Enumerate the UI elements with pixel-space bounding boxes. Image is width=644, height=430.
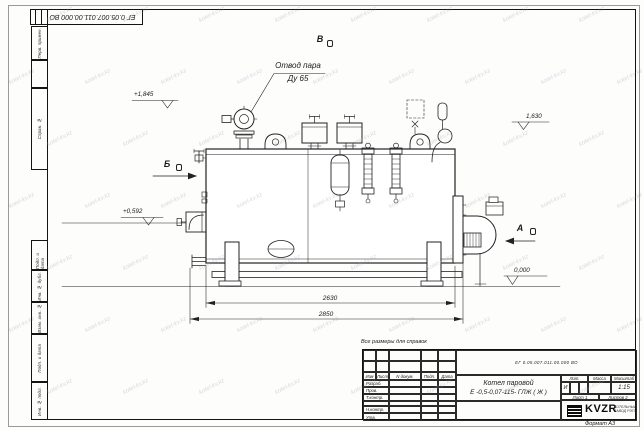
row-nkontr: Н.контр. — [363, 406, 389, 413]
dashed-fitting — [407, 100, 424, 134]
sheets-value: 2 — [625, 395, 627, 400]
titleblock-cell — [389, 406, 421, 413]
reference-note: Все размеры для справок — [361, 339, 427, 345]
titleblock-cell — [421, 413, 438, 421]
col-header-list: Лист — [376, 372, 389, 380]
titleblock-cell — [438, 387, 456, 394]
scale-value: 1:15 — [611, 382, 637, 394]
titleblock-cell — [570, 382, 579, 394]
steam-outlet-label-line2: Ду 65 — [262, 74, 334, 83]
titleblock-cell — [389, 350, 421, 361]
logo-cell: KVZR КОТЕЛЬНЫЙ ЗАВОД РЭП — [561, 400, 637, 421]
sheets-label: Листов — [608, 395, 624, 400]
steam-outlet-valve — [222, 106, 257, 149]
titleblock-cell — [438, 394, 456, 401]
dimension-2850: 2850 — [296, 311, 356, 318]
titleblock-cell — [579, 382, 588, 394]
kvzr-caption: КОТЕЛЬНЫЙ ЗАВОД РЭП — [614, 405, 637, 413]
lit-value: И — [561, 382, 570, 394]
product-name-line2: Е -0,5-0,07-115- ГЛЖ ( Ж ) — [457, 389, 560, 396]
sheet-value: 1 — [585, 395, 587, 400]
view-b-sheet-ref — [176, 164, 182, 171]
product-name-line1: Котел паровой — [457, 380, 560, 387]
col-header-data: Дата — [438, 372, 456, 380]
safety-valve — [302, 115, 362, 150]
format-label: Формат А3 — [570, 421, 630, 427]
steam-outlet-label-line1: Отвод пара — [262, 61, 334, 70]
elevation-0000: 0,000 — [514, 267, 530, 274]
elevation-1630: 1,630 — [526, 113, 542, 120]
title-block: Изм Лист N докум. Подп. Дата Разраб. Про… — [362, 349, 636, 420]
titleblock-cell — [389, 394, 421, 401]
dimension-2630: 2630 — [300, 295, 360, 302]
titleblock-cell — [438, 380, 456, 387]
lit-header: Лит. — [561, 375, 588, 382]
titleblock-cell — [421, 387, 438, 394]
titleblock-cell — [438, 413, 456, 421]
kvzr-logo-text: KVZR — [585, 403, 617, 415]
titleblock-cell — [438, 406, 456, 413]
row-tkontr: Т.контр. — [363, 394, 389, 401]
titleblock-cell — [376, 350, 389, 361]
view-a-sheet-ref — [530, 228, 536, 235]
kvzr-logo-icon — [567, 405, 582, 417]
titleblock-cell — [421, 394, 438, 401]
titleblock-cell — [421, 361, 438, 372]
titleblock-cell — [389, 380, 421, 387]
row-prov: Пров. — [363, 387, 389, 394]
col-header-izm: Изм — [363, 372, 376, 380]
elevation-0592: +0,592 — [123, 208, 142, 215]
row-utv: Утв. — [363, 413, 389, 421]
titleblock-cell — [389, 387, 421, 394]
col-header-doc: N докум. — [389, 372, 421, 380]
titleblock-cell — [376, 361, 389, 372]
boiler-body — [206, 149, 455, 263]
titleblock-cell — [363, 361, 376, 372]
titleblock-cell — [421, 350, 438, 361]
view-label-v: В — [312, 34, 328, 44]
doc-number: ЕГ 0.05.007.011.00.000 ВО — [456, 350, 637, 375]
titleblock-cell — [421, 380, 438, 387]
view-v-sheet-ref — [327, 40, 333, 47]
view-label-a: А — [512, 223, 528, 233]
titleblock-cell — [389, 413, 421, 421]
drawing-sheet: ЕГ 0.05.007.011.00.000 ВО Перв. примен. … — [0, 0, 644, 430]
blowdown-valve — [177, 192, 207, 268]
row-razrab: Разраб. — [363, 380, 389, 387]
view-label-b: Б — [160, 159, 174, 169]
lifting-lug — [265, 134, 430, 149]
product-name-cell: Котел паровой Е -0,5-0,07-115- ГЛЖ ( Ж ) — [456, 375, 561, 401]
mass-header: Масса — [588, 375, 611, 382]
titleblock-cell — [438, 350, 456, 361]
col-header-podp: Подп. — [421, 372, 438, 380]
titleblock-cell — [363, 350, 376, 361]
titleblock-cell — [438, 361, 456, 372]
titleblock-cell — [389, 361, 421, 372]
mass-value — [588, 382, 611, 394]
titleblock-cell — [456, 401, 561, 421]
sheet-label: Лист — [573, 395, 584, 400]
elevation-1845: +1,845 — [134, 91, 153, 98]
deck-tee-valve — [194, 149, 206, 163]
scale-header: Масштаб — [611, 375, 637, 382]
titleblock-cell — [421, 406, 438, 413]
